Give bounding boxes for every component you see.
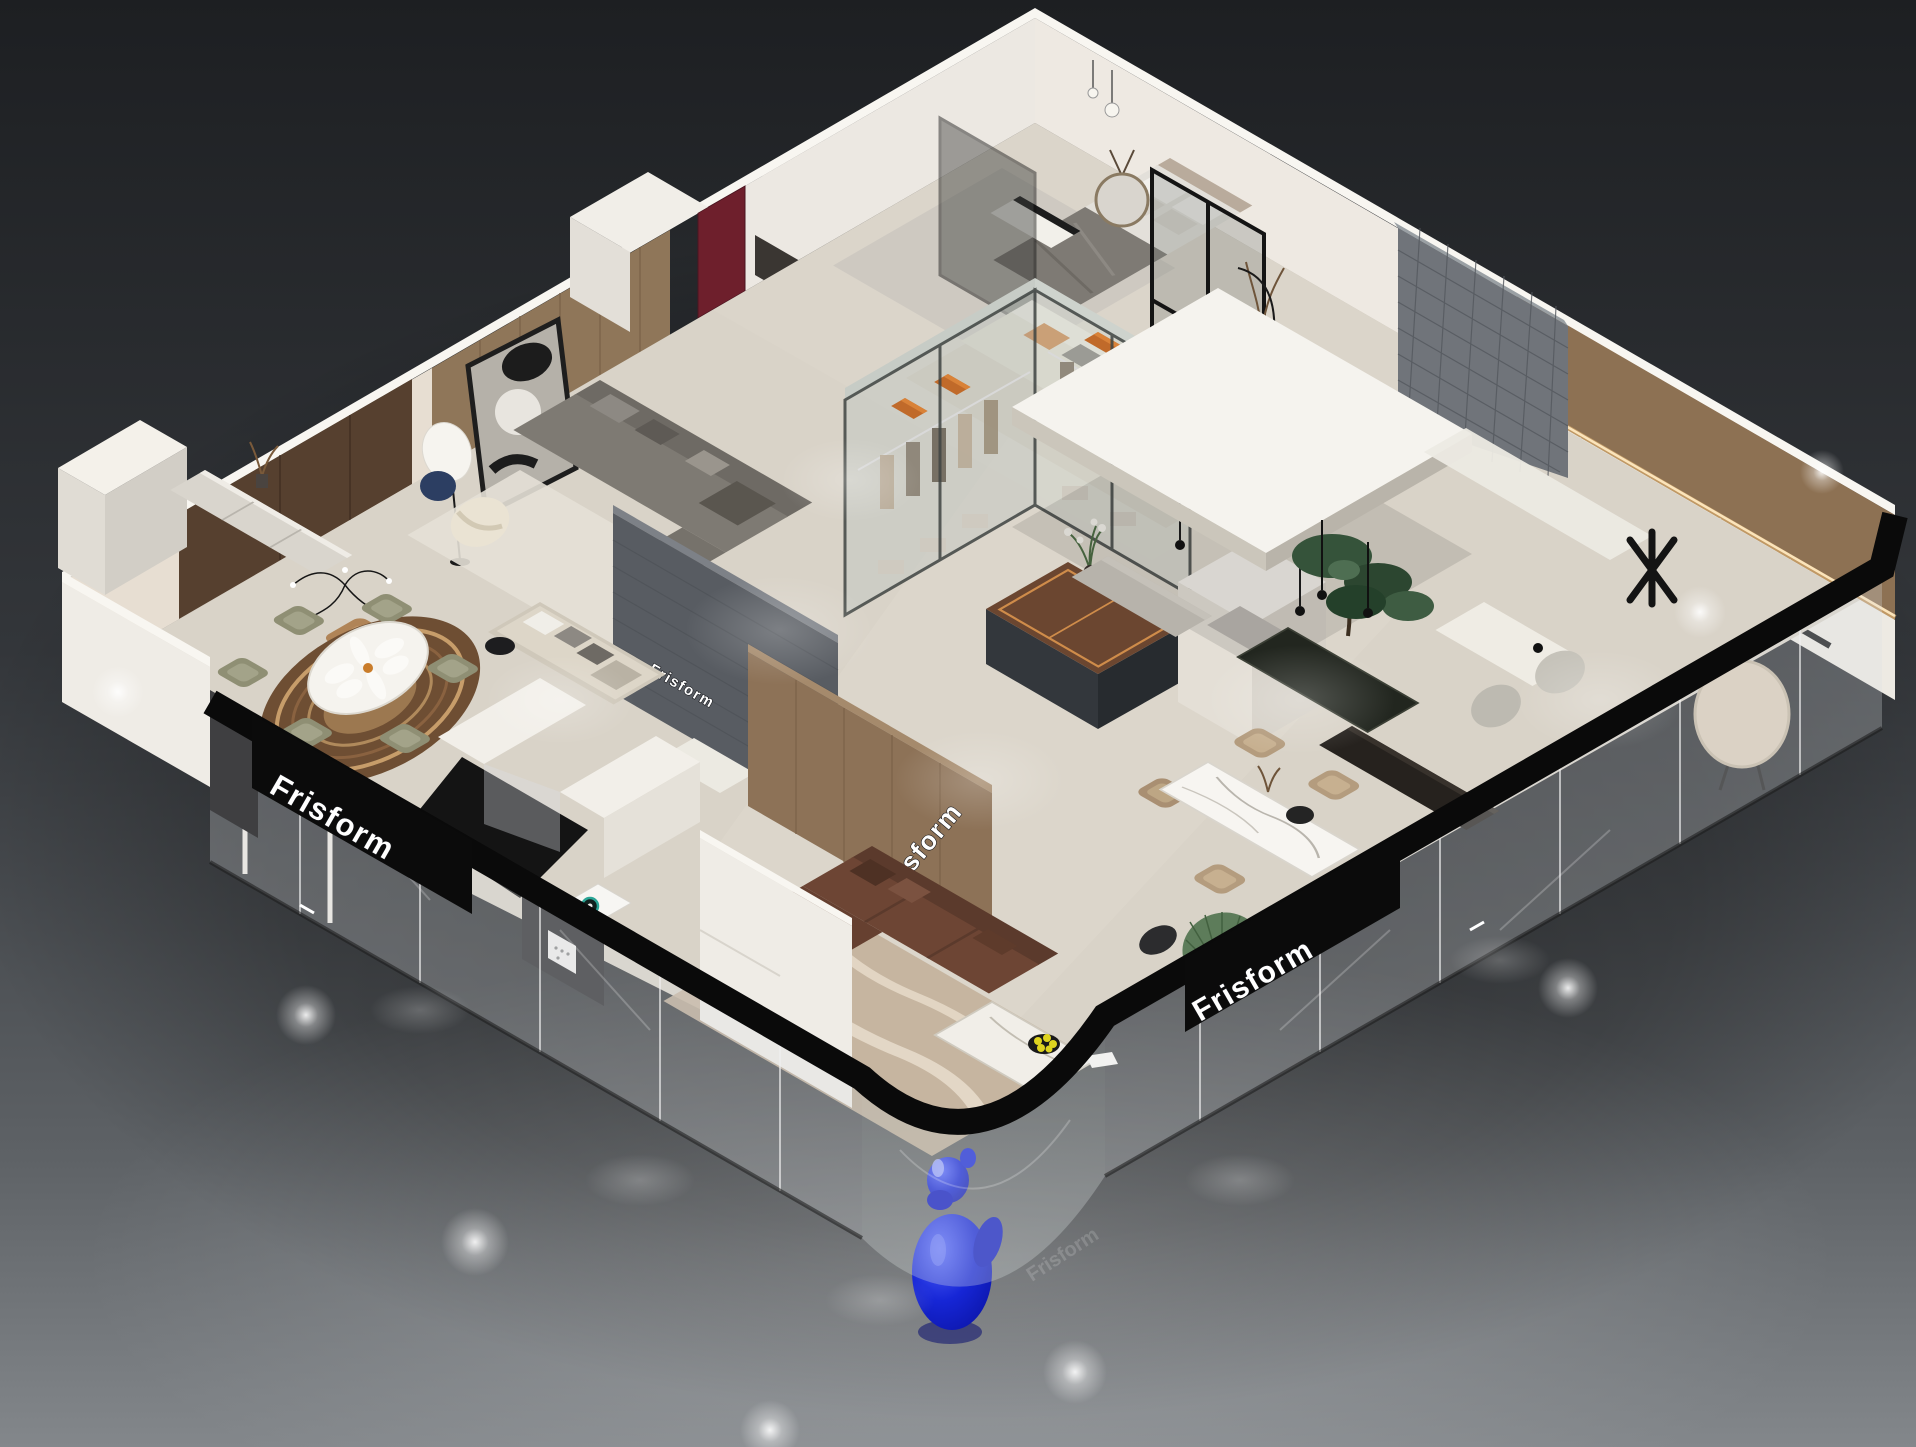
black-side-table [485, 637, 515, 655]
black-vase [1533, 643, 1543, 653]
navy-ball-chair [420, 471, 456, 501]
table-bowl [1286, 806, 1314, 824]
showroom-render: Frisform [0, 0, 1916, 1447]
showroom-scene: Frisform [0, 0, 1916, 1447]
